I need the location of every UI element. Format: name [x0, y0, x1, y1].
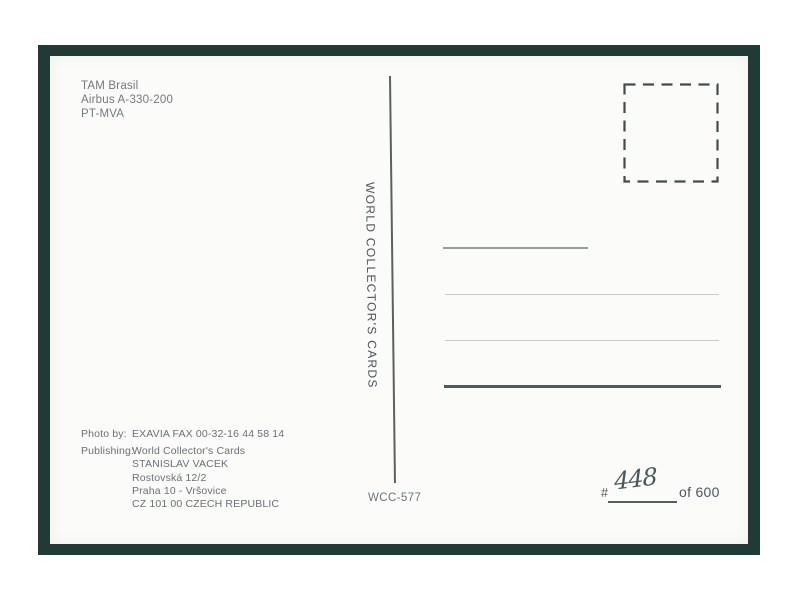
- photo-by-row: Photo by: EXAVIA FAX 00-32-16 44 58 14: [81, 428, 284, 441]
- publisher-country: CZ 101 00 CZECH REPUBLIC: [132, 498, 279, 511]
- edition-number-handwritten: 448: [613, 462, 657, 495]
- photo-by-label: Photo by:: [81, 428, 132, 441]
- aircraft-registration: PT-MVA: [81, 107, 173, 121]
- credits-block: Photo by: EXAVIA FAX 00-32-16 44 58 14 P…: [81, 428, 284, 511]
- photo-by-value: EXAVIA FAX 00-32-16 44 58 14: [132, 428, 284, 441]
- card-number: WCC-577: [368, 492, 421, 504]
- publisher-person: STANISLAV VACEK: [132, 458, 228, 471]
- publisher-street: Rostovská 12/2: [132, 472, 206, 485]
- divider-line: [389, 76, 396, 483]
- publisher-city: Praha 10 - Vršovice: [132, 485, 227, 498]
- publishing-row: Publishing: World Collector's Cards: [81, 445, 284, 458]
- stamp-box: [623, 83, 719, 184]
- publisher-country-row: CZ 101 00 CZECH REPUBLIC: [81, 498, 284, 511]
- aircraft-info: TAM Brasil Airbus A-330-200 PT-MVA: [81, 79, 173, 121]
- publisher-name: World Collector's Cards: [132, 445, 245, 458]
- postcard-back: TAM Brasil Airbus A-330-200 PT-MVA WORLD…: [50, 56, 748, 544]
- edition-underline: [608, 501, 677, 503]
- address-line-2: [445, 294, 719, 295]
- edition-total: of 600: [679, 484, 720, 500]
- publishing-label: Publishing:: [81, 445, 132, 458]
- publisher-street-row: Rostovská 12/2: [81, 472, 284, 485]
- publisher-person-row: STANISLAV VACEK: [81, 458, 284, 471]
- address-line-3: [445, 340, 719, 341]
- aircraft-airline: TAM Brasil: [81, 79, 173, 93]
- address-line-1: [443, 247, 588, 249]
- postcard-frame: TAM Brasil Airbus A-330-200 PT-MVA WORLD…: [38, 45, 760, 555]
- edition-hash-symbol: #: [601, 486, 608, 500]
- publisher-city-row: Praha 10 - Vršovice: [81, 485, 284, 498]
- aircraft-type: Airbus A-330-200: [81, 93, 173, 107]
- brand-vertical-text: WORLD COLLECTOR'S CARDS: [363, 182, 380, 389]
- address-line-4: [444, 385, 721, 388]
